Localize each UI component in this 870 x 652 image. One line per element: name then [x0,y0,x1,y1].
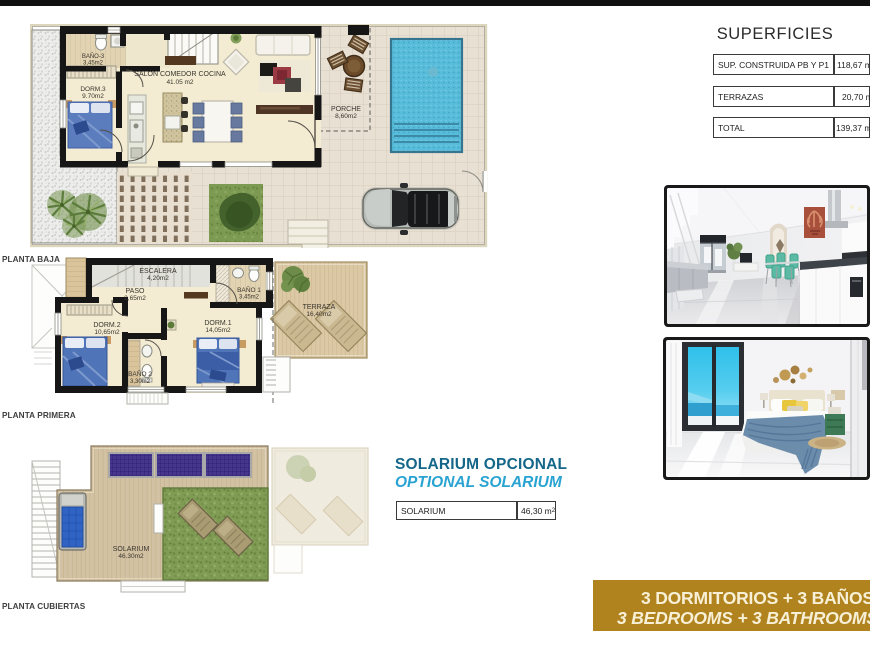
svg-text:10,65m2: 10,65m2 [94,329,120,336]
svg-text:BAÑO-3: BAÑO-3 [82,53,105,60]
svg-text:41.05 m2: 41.05 m2 [166,79,193,86]
svg-text:9.70m2: 9.70m2 [82,93,104,100]
svg-text:14,05m2: 14,05m2 [205,327,231,334]
svg-text:4,20m2: 4,20m2 [147,275,169,282]
svg-text:8,60m2: 8,60m2 [335,113,357,120]
svg-text:46.30m2: 46.30m2 [118,553,144,560]
svg-text:SALON COMEDOR COCINA: SALON COMEDOR COCINA [134,71,226,78]
svg-text:PASO: PASO [126,288,145,295]
svg-text:16,40m2: 16,40m2 [306,311,332,318]
svg-text:3,30m2: 3,30m2 [130,379,151,385]
svg-text:3,45m2: 3,45m2 [239,295,260,301]
svg-text:DORM.1: DORM.1 [204,320,231,327]
svg-text:SOLARIUM: SOLARIUM [113,546,150,553]
svg-text:TERRAZA: TERRAZA [303,304,336,311]
svg-text:2,65m2: 2,65m2 [124,295,146,302]
svg-text:DORM.3: DORM.3 [80,86,106,93]
svg-text:3,45m2: 3,45m2 [83,61,104,67]
svg-text:ESCALERA: ESCALERA [139,268,177,275]
svg-text:BAÑO 2: BAÑO 2 [128,369,152,378]
svg-text:PORCHE: PORCHE [331,106,361,113]
svg-text:DORM.2: DORM.2 [93,322,120,329]
svg-text:BAÑO 1: BAÑO 1 [237,285,261,294]
